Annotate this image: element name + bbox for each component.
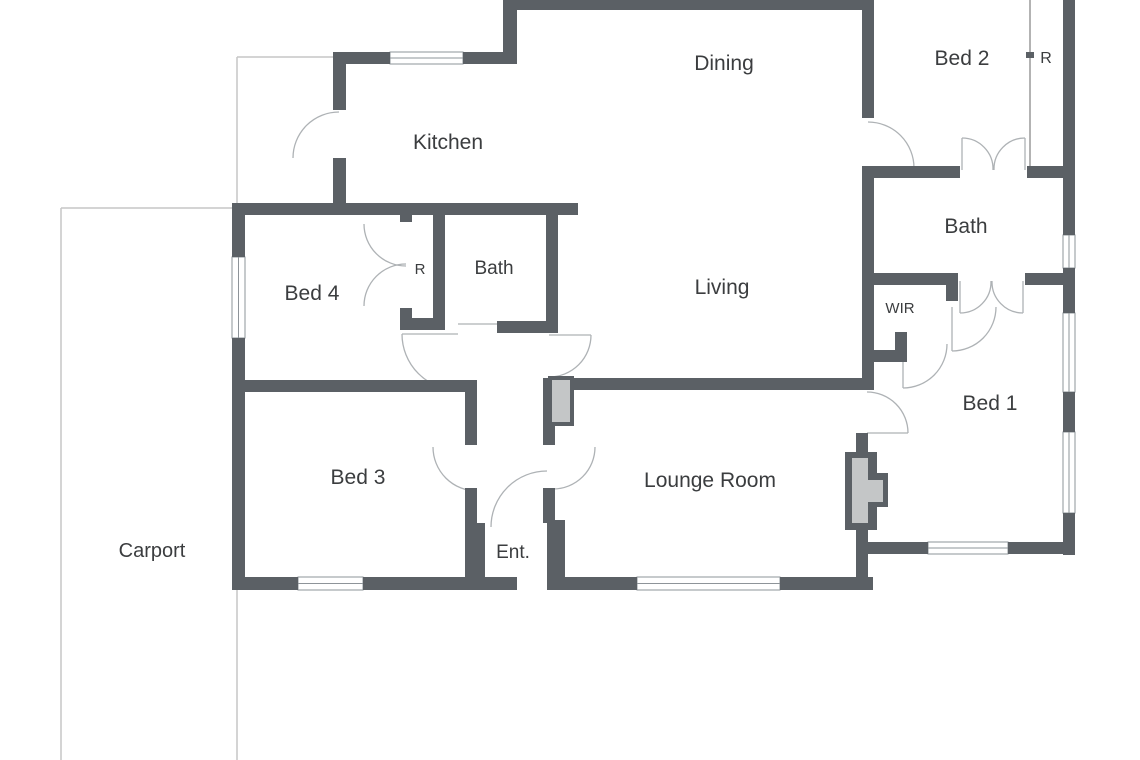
wall [547, 520, 565, 577]
door-arc [491, 471, 547, 527]
wall [895, 332, 907, 350]
door-arc [952, 307, 996, 351]
wall [543, 488, 555, 523]
wall [433, 203, 445, 330]
room-label-lounge-room: Lounge Room [644, 469, 776, 492]
wall [465, 380, 477, 445]
room-label-carport: Carport [119, 540, 186, 562]
wall [363, 577, 517, 590]
wall [1063, 392, 1075, 432]
wall [547, 577, 637, 590]
room-label-robe-bed-4: R [415, 261, 426, 278]
room-label-living: Living [695, 276, 750, 299]
window-segments [232, 52, 1075, 590]
wall [333, 52, 346, 110]
wall [463, 52, 517, 64]
fixture-fill [552, 380, 570, 422]
room-label-bath-right: Bath [944, 215, 987, 238]
wall [543, 378, 868, 390]
wall [1063, 268, 1075, 313]
wall-segments [232, 0, 1075, 590]
door-arc [960, 281, 991, 313]
door-arc [962, 138, 993, 170]
wall [856, 433, 868, 452]
wall [946, 273, 958, 301]
fixture-fill [852, 458, 868, 523]
wall [868, 542, 928, 554]
wall [862, 166, 874, 390]
wall [874, 273, 946, 285]
room-label-bed-3: Bed 3 [331, 466, 386, 489]
wall [245, 380, 477, 392]
room-label-wir: WIR [885, 300, 914, 317]
wall [465, 488, 477, 523]
wall [232, 338, 245, 590]
door-arc [868, 122, 914, 168]
wall [517, 0, 862, 10]
floorplan-svg: KitchenDiningBed 2RBed 4RBathLivingBathW… [0, 0, 1140, 760]
floorplan-page: KitchenDiningBed 2RBed 4RBathLivingBathW… [0, 0, 1140, 760]
wall [1026, 52, 1034, 58]
room-labels: KitchenDiningBed 2RBed 4RBathLivingBathW… [119, 47, 1052, 563]
door-arc [549, 335, 591, 377]
door-arc [364, 224, 406, 266]
wall [874, 350, 907, 362]
wall [232, 203, 245, 257]
door-arc [433, 447, 477, 491]
wall [874, 166, 960, 178]
room-label-robe-bed-2: R [1040, 50, 1052, 67]
wall [856, 530, 868, 590]
wall [465, 523, 485, 577]
wall [546, 203, 558, 333]
wall [232, 577, 298, 590]
wall [1063, 0, 1075, 235]
room-label-dining: Dining [694, 52, 754, 75]
door-arc [553, 447, 595, 489]
wall [400, 318, 445, 330]
room-label-kitchen: Kitchen [413, 131, 483, 154]
wall [1008, 542, 1063, 554]
door-arc [903, 344, 947, 388]
room-label-bed-4: Bed 4 [285, 282, 340, 305]
room-label-bed-1: Bed 1 [963, 392, 1018, 415]
wall [1027, 166, 1063, 178]
door-arc [867, 392, 908, 433]
wall [862, 0, 874, 118]
door-arc [293, 112, 339, 158]
wall [1025, 273, 1063, 285]
fixture-fill [868, 480, 883, 502]
room-label-bath-left: Bath [474, 258, 513, 279]
room-label-bed-2: Bed 2 [935, 47, 990, 70]
wall [400, 203, 412, 222]
room-label-entry: Ent. [496, 542, 530, 563]
door-arc [994, 138, 1025, 170]
wall [497, 321, 546, 333]
fireplace-and-meterbox [548, 376, 888, 530]
door-arc [364, 264, 406, 306]
carport-boundary-lines [61, 57, 333, 760]
wall [1063, 513, 1075, 555]
